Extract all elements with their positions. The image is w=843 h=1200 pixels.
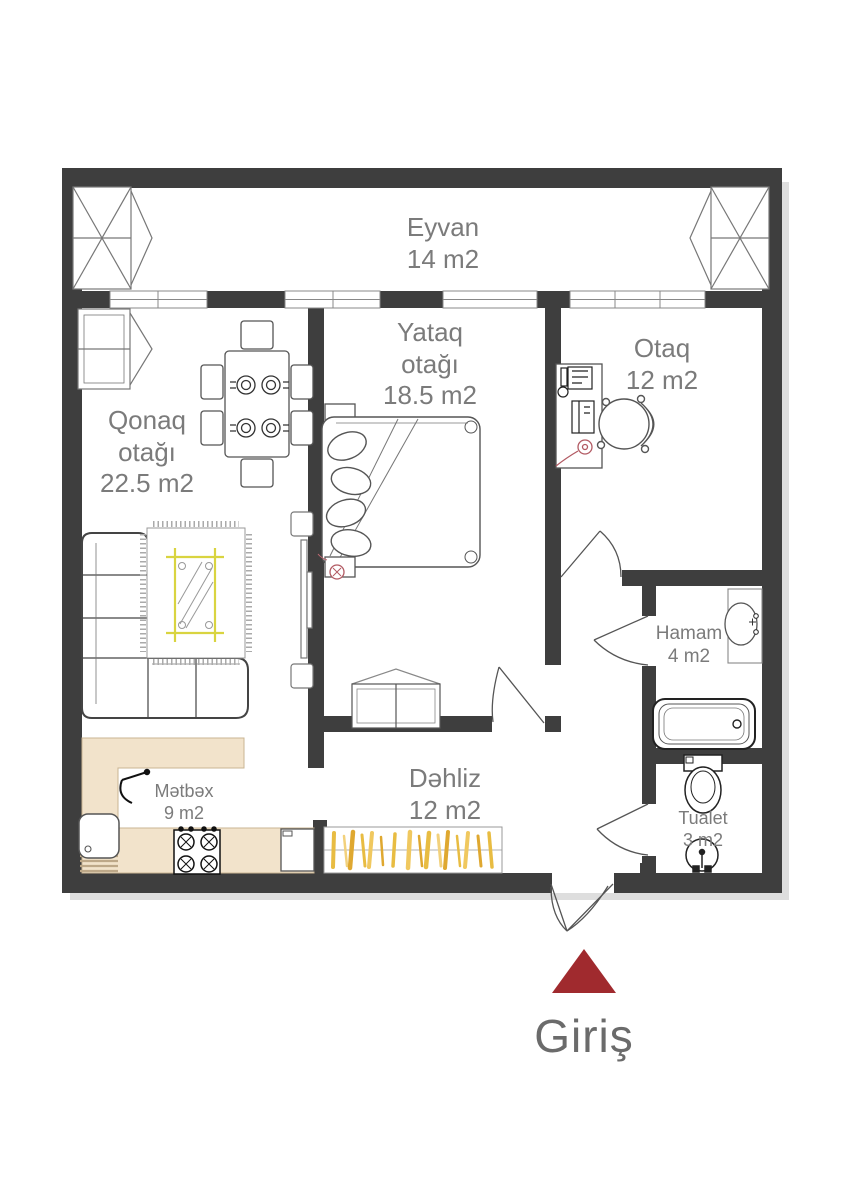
- room-label-qonaq: Qonaq otağı 22.5 m2: [88, 405, 206, 500]
- door-swings: [492, 531, 648, 931]
- room-name: Dəhliz: [385, 763, 505, 795]
- room-name: Eyvan: [343, 212, 543, 244]
- room-name: Hamam: [648, 622, 730, 645]
- room-area: 22.5 m2: [88, 468, 206, 500]
- room-name: Otaq: [602, 333, 722, 365]
- room-name: Tualet: [663, 808, 743, 830]
- room-name: Qonaq otağı: [88, 405, 206, 468]
- double-bed-icon: [322, 417, 480, 567]
- dresser-icon: [352, 669, 440, 728]
- entrance-label: Giriş: [484, 1008, 684, 1064]
- bathtub-icon: [653, 699, 755, 749]
- room-label-yataq: Yataq otağı 18.5 m2: [372, 317, 488, 412]
- floorplan-graphic: [0, 0, 843, 1200]
- room-area: 14 m2: [343, 244, 543, 276]
- toilet-icon: [684, 755, 722, 813]
- bathroom-sink-icon: [725, 589, 762, 663]
- desk-with-computer-icon: [556, 364, 602, 468]
- room-label-eyvan: Eyvan 14 m2: [343, 212, 543, 275]
- kitchen-sink-icon: [79, 814, 119, 858]
- fridge-icon: [281, 829, 314, 871]
- room-area: 18.5 m2: [372, 380, 488, 412]
- room-label-otaq: Otaq 12 m2: [602, 333, 722, 396]
- room-name: Yataq otağı: [372, 317, 488, 380]
- wardrobe-icon: [324, 827, 502, 873]
- balcony-window-right-icon: [690, 187, 769, 289]
- stove-icon: [174, 827, 220, 874]
- entrance-arrow-icon: [552, 949, 616, 993]
- room-label-hamam: Hamam 4 m2: [648, 622, 730, 668]
- room-area: 12 m2: [385, 795, 505, 827]
- room-label-dehliz: Dəhliz 12 m2: [385, 763, 505, 826]
- room-area: 12 m2: [602, 365, 722, 397]
- floor-plan: Eyvan 14 m2 Yataq otağı 18.5 m2 Otaq 12 …: [0, 0, 843, 1200]
- balcony-window-left-icon: [73, 187, 152, 289]
- room-name: Mətbəx: [144, 781, 224, 803]
- office-chair-icon: [598, 396, 655, 453]
- room-area: 3 m2: [663, 830, 743, 852]
- room-label-metbex: Mətbəx 9 m2: [144, 781, 224, 825]
- dining-table-set-icon: [201, 321, 313, 487]
- corner-cabinet-icon: [78, 309, 152, 389]
- room-label-tualet: Tualet 3 m2: [663, 808, 743, 852]
- room-area: 4 m2: [648, 645, 730, 668]
- rug-icon: [143, 524, 249, 662]
- room-area: 9 m2: [144, 803, 224, 825]
